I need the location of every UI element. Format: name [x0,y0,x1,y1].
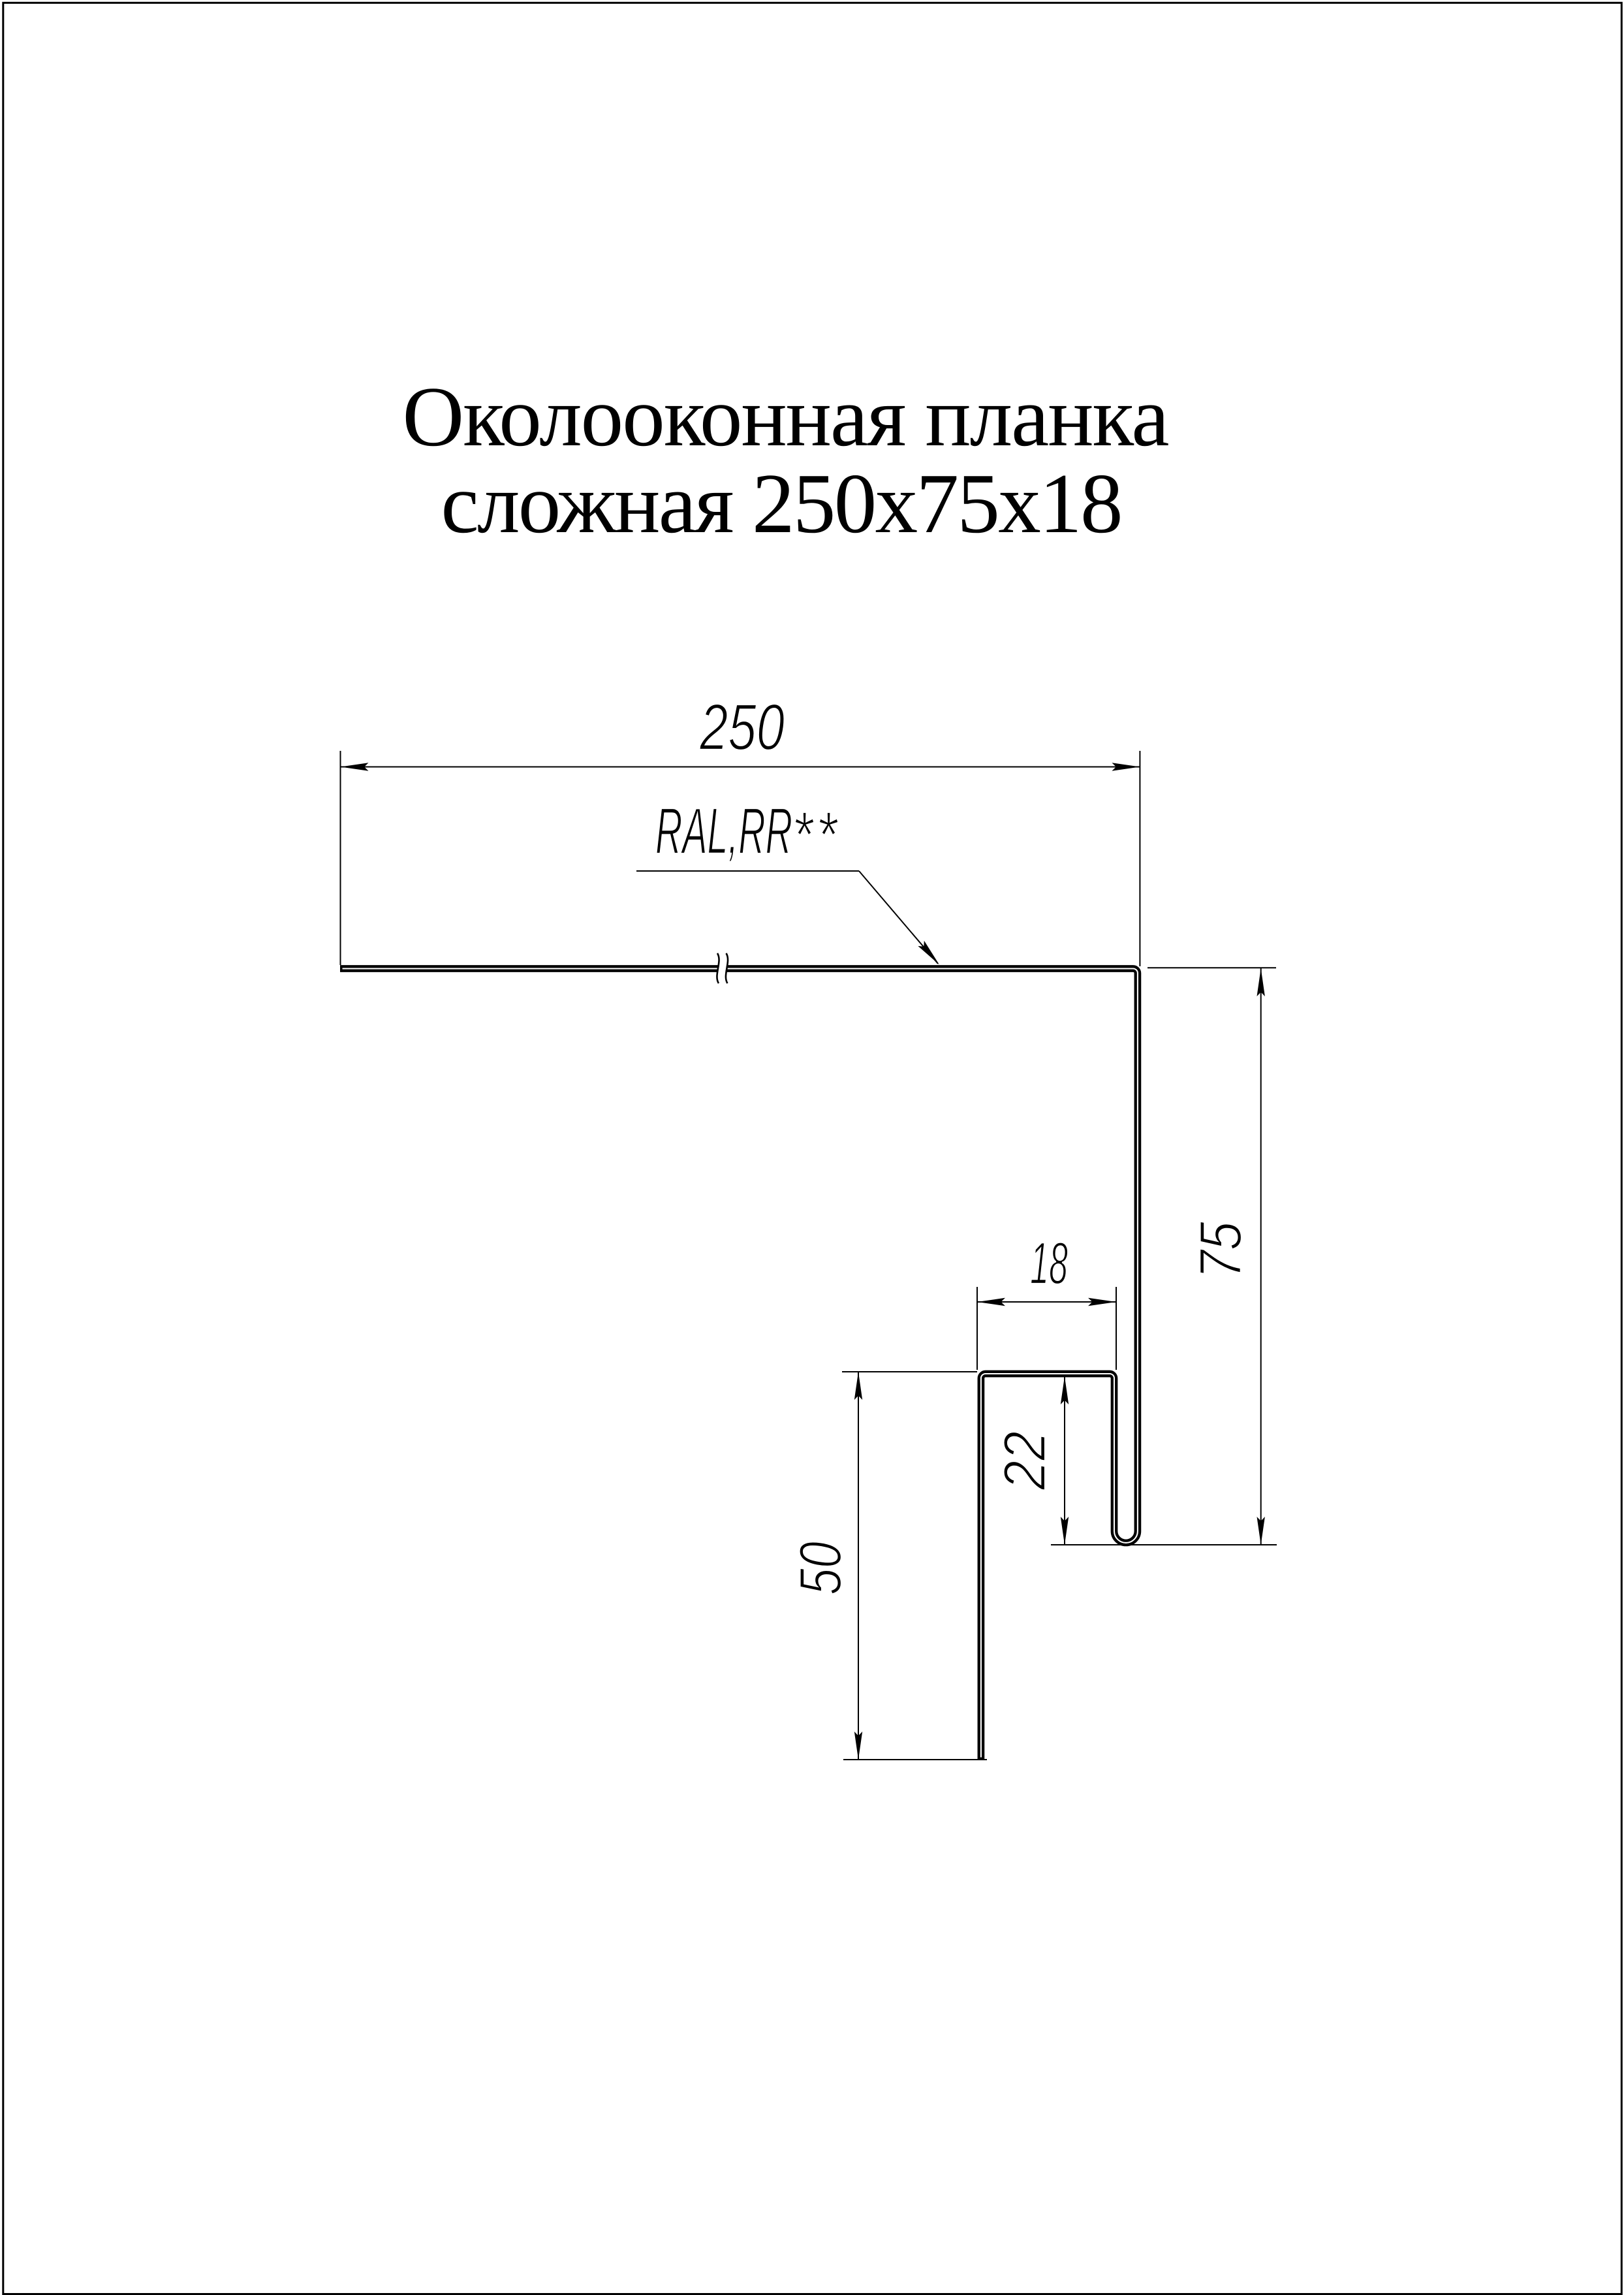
svg-text:Околооконная планка: Околооконная планка [403,370,1170,464]
svg-text:сложная 250х75х18: сложная 250х75х18 [441,456,1123,551]
svg-text:50: 50 [788,1542,854,1595]
svg-text:75: 75 [1188,1222,1254,1279]
svg-text:RAL,RR: RAL,RR [655,795,792,868]
svg-text:18: 18 [1030,1231,1068,1297]
svg-text:250: 250 [699,691,785,764]
svg-text:22: 22 [992,1431,1058,1491]
svg-text:**: ** [792,799,840,872]
